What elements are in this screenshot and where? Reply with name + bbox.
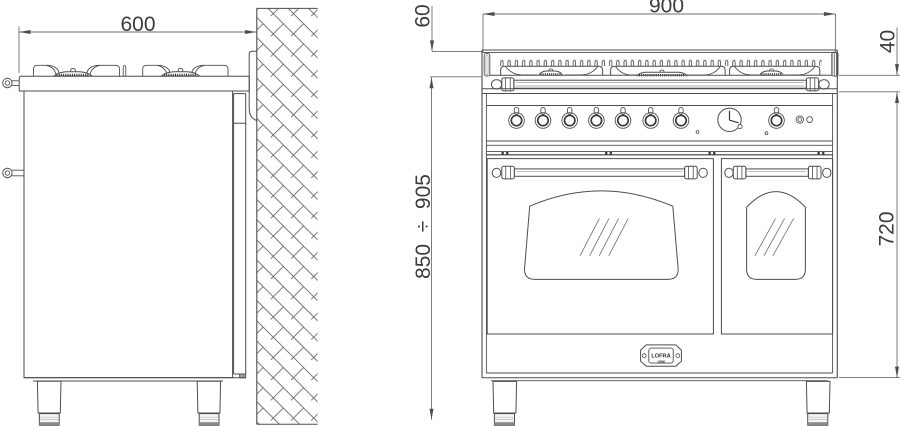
svg-text:LOFRA: LOFRA	[651, 354, 670, 360]
svg-text:40: 40	[877, 30, 900, 53]
svg-text:720: 720	[876, 211, 899, 246]
svg-text:600: 600	[120, 13, 155, 36]
svg-text:900: 900	[649, 0, 684, 18]
svg-text:850 ÷ 905: 850 ÷ 905	[412, 174, 435, 279]
svg-text:1956: 1956	[657, 360, 665, 364]
svg-text:60: 60	[412, 4, 435, 27]
